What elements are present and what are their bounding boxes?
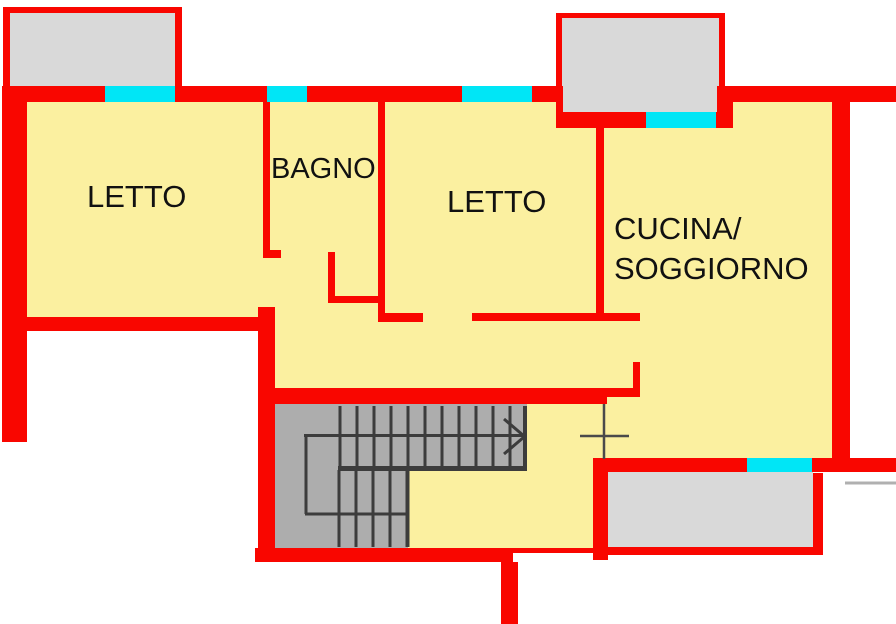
- wall-bagno-left: [263, 102, 270, 258]
- balcony-bottom-right: [608, 472, 813, 547]
- wall-top-right-run: [717, 86, 896, 102]
- wall-cucina-left: [596, 128, 604, 321]
- window-letto-1: [105, 86, 175, 102]
- wall-stairwell-bottom: [255, 548, 513, 562]
- wall-corridor-top-run: [472, 313, 640, 321]
- balcony-top-center: [562, 18, 719, 112]
- window-letto-2: [462, 86, 532, 102]
- wall-letto1-bottom: [2, 317, 275, 331]
- wall-cucina-door-stub: [633, 362, 640, 397]
- wall-bottom-right-right-run: [812, 458, 896, 472]
- floor-plan: LETTO BAGNO LETTO CUCINA/ SOGGIORNO: [0, 0, 896, 624]
- wall-corridor-top-stub: [378, 313, 423, 322]
- balcony-top-center-border-top: [556, 13, 725, 18]
- balcony-top-left-border-top: [3, 7, 182, 13]
- balcony-bottom-right-border-bottom: [593, 547, 823, 555]
- balcony-top-left-border-left: [3, 7, 10, 87]
- balcony-top-left: [10, 13, 175, 87]
- room-label-cucina-line2: SOGGIORNO: [614, 253, 809, 284]
- wall-corridor-right: [593, 458, 608, 560]
- window-cucina-bottom: [747, 458, 812, 472]
- wall-right-exterior: [832, 98, 850, 472]
- wall-bagno-door-jamb: [263, 250, 281, 258]
- room-label-bagno: BAGNO: [271, 155, 376, 184]
- wall-bottom-protrusion: [501, 562, 518, 624]
- wall-left-exterior: [2, 86, 27, 442]
- window-cucina-top: [646, 112, 716, 128]
- balcony-top-center-border-left: [556, 13, 562, 112]
- room-label-letto-1: LETTO: [87, 181, 186, 212]
- floor-corridor: [275, 322, 605, 392]
- room-label-cucina-line1: CUCINA/: [614, 213, 741, 244]
- window-bagno: [267, 86, 307, 102]
- wall-bagno-right: [378, 102, 385, 322]
- staircase-lower-flight-area: [275, 470, 408, 548]
- wall-bottom-right-left-run: [593, 458, 747, 472]
- wall-corridor-left: [258, 307, 275, 562]
- room-label-letto-2: LETTO: [447, 186, 546, 217]
- floor-cucina: [604, 128, 832, 458]
- balcony-bottom-right-border-right: [813, 473, 823, 555]
- wall-bottom-thin-line: [513, 548, 593, 553]
- wall-bagno-L-horizontal: [328, 296, 381, 303]
- balcony-top-center-border-right: [719, 13, 725, 112]
- wall-stairwell-top-thick: [267, 388, 607, 404]
- wall-connector-right: [717, 100, 733, 112]
- staircase-upper-flight-area: [275, 404, 527, 470]
- balcony-top-left-border-right: [175, 7, 182, 87]
- wall-connector-left: [556, 100, 563, 112]
